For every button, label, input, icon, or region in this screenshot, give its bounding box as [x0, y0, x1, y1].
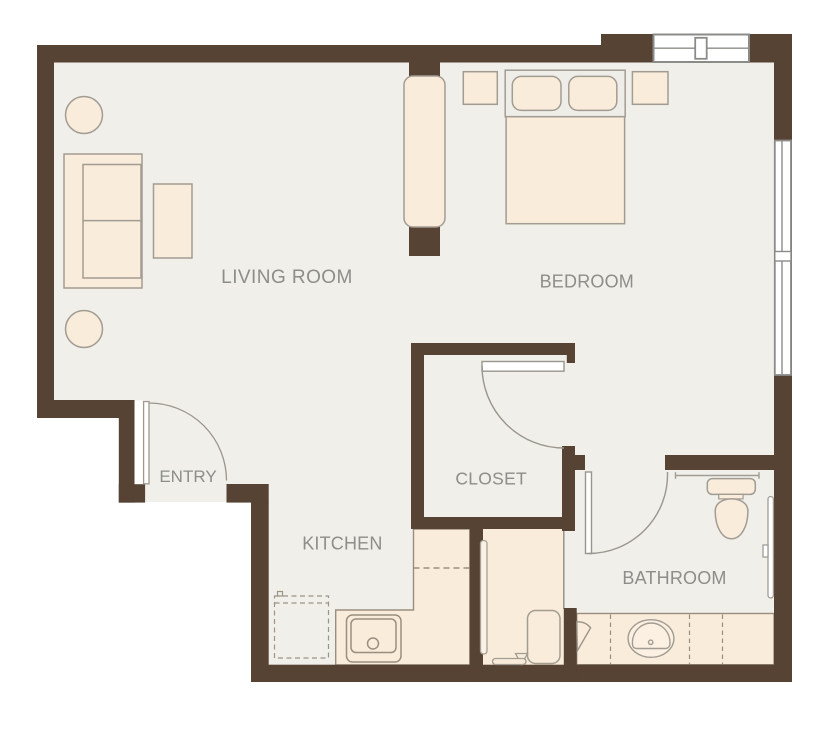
svg-text:CLOSET: CLOSET [455, 468, 527, 488]
svg-text:BATHROOM: BATHROOM [622, 568, 726, 588]
svg-text:LIVING ROOM: LIVING ROOM [221, 267, 353, 288]
svg-text:ENTRY: ENTRY [159, 467, 216, 486]
svg-text:KITCHEN: KITCHEN [302, 534, 382, 554]
svg-text:BEDROOM: BEDROOM [540, 272, 634, 292]
